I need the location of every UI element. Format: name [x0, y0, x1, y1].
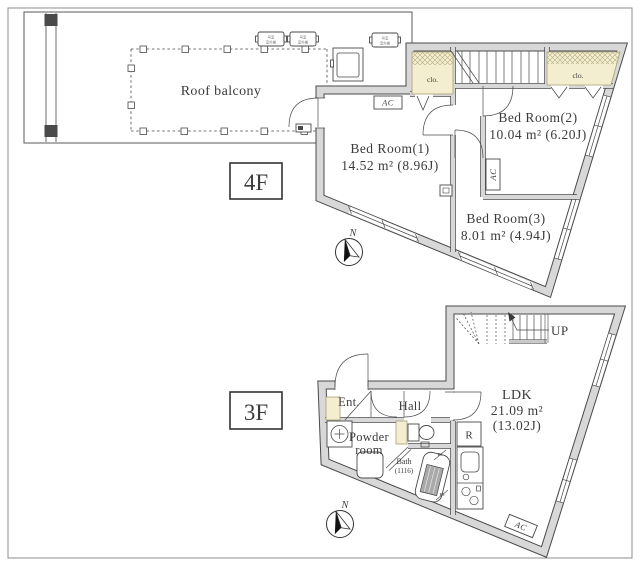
bedroom1-label: Bed Room(1)	[350, 141, 429, 156]
roof-balcony-label: Roof balcony	[181, 84, 262, 99]
balcony-door-opening	[315, 98, 325, 128]
ldk-label: LDK	[502, 388, 532, 403]
compass-4f: N	[336, 228, 363, 266]
svg-text:号室: 号室	[382, 36, 389, 41]
hall-label: Hall	[399, 399, 422, 413]
bedroom2-area: 10.04 m² (6.20J)	[489, 127, 587, 142]
entrance-label: Ent.	[338, 395, 360, 409]
up-label: UP	[551, 323, 569, 338]
bedroom3-label: Bed Room(3)	[466, 211, 545, 226]
outdoor-unit-2: 号室 室外機	[288, 32, 319, 46]
outdoor-unit-1: 号室 室外機	[256, 32, 287, 46]
svg-text:号室: 号室	[268, 35, 275, 40]
svg-text:号室: 号室	[300, 35, 307, 40]
powder-room-label: Powder	[349, 430, 390, 444]
north-label: N	[349, 228, 358, 239]
north-label: N	[341, 500, 350, 511]
bath-size-label: (1116)	[395, 467, 414, 475]
refrigerator-space: R	[457, 422, 481, 446]
floor-4f: Roof balcony 号室 室外機 号室 室外機 号室 室外機	[24, 12, 622, 292]
svg-text:3F: 3F	[244, 400, 268, 425]
compass-3f: N	[327, 500, 354, 538]
svg-text:clo.: clo.	[427, 75, 438, 84]
svg-text:clo.: clo.	[572, 71, 583, 80]
svg-text:室外機: 室外機	[298, 40, 309, 45]
ldk-area: 21.09 m²	[491, 403, 543, 418]
kitchen	[457, 447, 483, 509]
svg-text:室外機: 室外機	[380, 41, 391, 46]
floor-3f: UP	[230, 310, 620, 552]
svg-text:AC: AC	[488, 169, 498, 182]
pipe-space-box	[440, 185, 452, 196]
bedroom3-area: 8.01 m² (4.94J)	[461, 228, 551, 243]
bedroom1-area: 14.52 m² (8.96J)	[341, 158, 439, 173]
ac-unit-bedroom1: AC	[374, 96, 402, 109]
entrance-opening	[335, 380, 368, 391]
floorplan-svg: Roof balcony 号室 室外機 号室 室外機 号室 室外機	[0, 0, 640, 566]
outdoor-unit-3: 号室 室外機	[370, 33, 401, 47]
ldk-area2: (13.02J)	[493, 418, 542, 433]
rooftop-equipment	[331, 48, 364, 81]
bath-label: Bath	[396, 457, 411, 466]
bedroom2-label: Bed Room(2)	[498, 110, 577, 125]
svg-text:PS: PS	[437, 452, 443, 457]
balcony-step-box	[296, 124, 311, 132]
powder-room-label2: room	[355, 443, 383, 457]
svg-text:R: R	[465, 430, 473, 442]
svg-text:4F: 4F	[244, 170, 268, 195]
floor-tag-3f: 3F	[230, 392, 282, 429]
ldk-door-opening	[445, 392, 455, 421]
svg-text:PS: PS	[439, 492, 445, 497]
floorplan-page: Roof balcony 号室 室外機 号室 室外機 号室 室外機	[0, 0, 640, 566]
ac-unit-bedroom2: AC	[486, 159, 500, 190]
floor-tag-4f: 4F	[230, 163, 282, 199]
svg-text:室外機: 室外機	[266, 40, 277, 45]
svg-text:AC: AC	[381, 98, 394, 108]
